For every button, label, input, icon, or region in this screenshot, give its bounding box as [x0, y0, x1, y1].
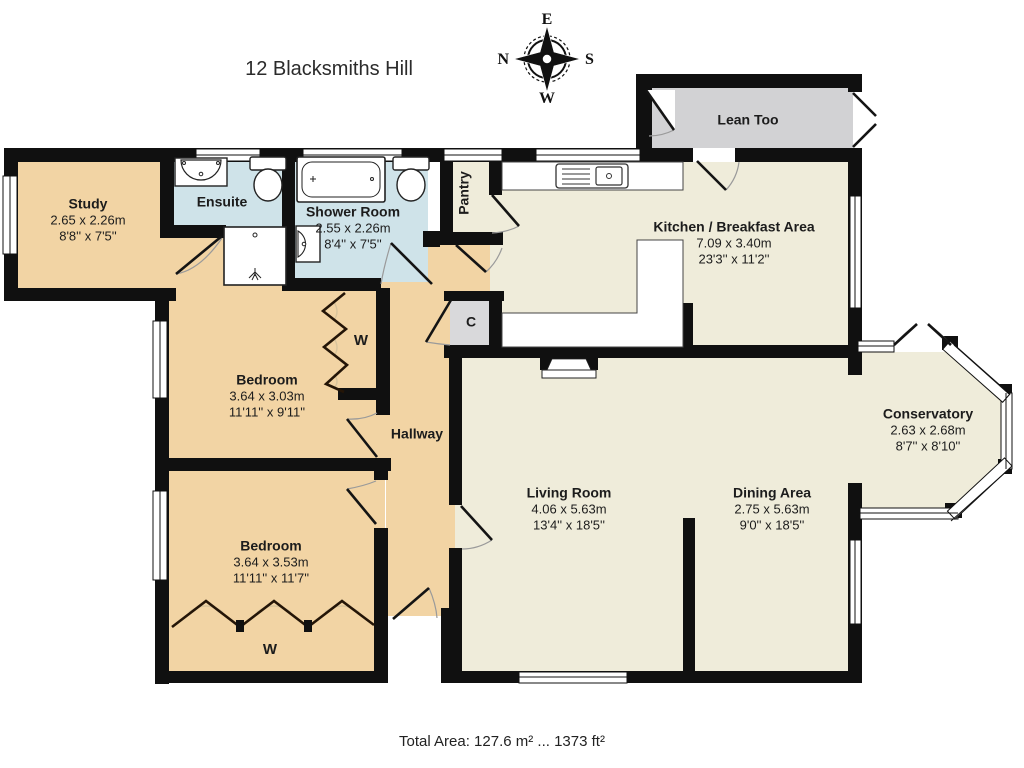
cupboard-label: C — [466, 313, 476, 330]
room-label-hallway: Hallway — [391, 425, 443, 442]
room-label-shower-room: Shower Room 2.55 x 2.26m 8'4'' x 7'5'' — [306, 204, 400, 253]
total-area-text: Total Area: 127.6 m² ... 1373 ft² — [337, 733, 667, 750]
room-label-dining-area: Dining Area 2.75 x 5.63m 9'0'' x 18'5'' — [733, 485, 811, 534]
wardrobe2-label: W — [263, 641, 277, 659]
kitchen-sink-icon — [556, 164, 628, 188]
shower-cubicle-icon — [224, 227, 286, 285]
compass-rose: E S W N — [497, 11, 594, 107]
room-label-kitchen: Kitchen / Breakfast Area 7.09 x 3.40m 23… — [653, 219, 814, 268]
ensuite-sink-icon — [175, 158, 227, 186]
compass-north-label: N — [497, 51, 509, 68]
fireplace-icon — [540, 356, 598, 378]
room-label-lean-too: Lean Too — [717, 111, 778, 128]
hallway-floor — [386, 282, 458, 622]
room-label-bedroom1: Bedroom 3.64 x 3.03m 11'11'' x 9'11'' — [229, 372, 305, 421]
room-label-study: Study 2.65 x 2.26m 8'8'' x 7'5'' — [50, 196, 125, 245]
room-label-conservatory: Conservatory 2.63 x 2.68m 8'7'' x 8'10'' — [883, 406, 973, 455]
room-label-living-room: Living Room 4.06 x 5.63m 13'4'' x 18'5'' — [527, 485, 612, 534]
wardrobe1-label: W — [354, 332, 368, 350]
compass-west-label: W — [539, 90, 555, 107]
floorplan-drawing: E S W N — [0, 0, 1024, 768]
floorplan-page: 12 Blacksmiths Hill — [0, 0, 1024, 768]
lean-too-kitchen-opening — [693, 148, 735, 162]
room-label-ensuite: Ensuite — [197, 193, 248, 210]
front-porch-recess — [388, 616, 441, 683]
room-label-bedroom2: Bedroom 3.64 x 3.53m 11'11'' x 11'7'' — [233, 538, 309, 587]
room-label-pantry: Pantry — [455, 171, 472, 215]
bathtub-icon — [297, 157, 385, 202]
compass-south-label: S — [585, 51, 594, 68]
compass-east-label: E — [542, 11, 553, 28]
